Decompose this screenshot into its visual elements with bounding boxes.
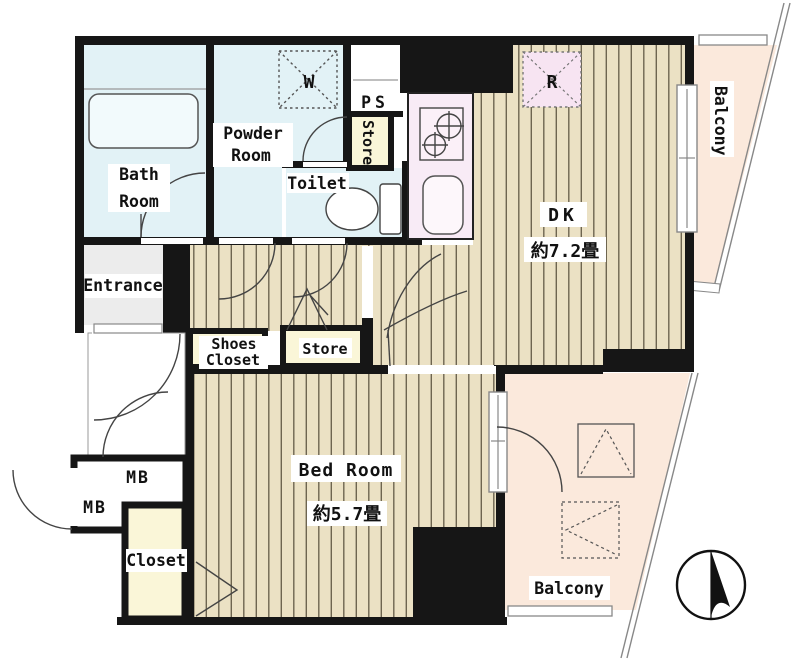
store-hall-label: Store [302,340,347,358]
fridge-symbol-label: R [547,72,558,93]
sliding-window-dk [677,85,697,232]
sliding-window-bedroom [489,392,507,492]
floorplan-page: Bath Room Powder Room Toilet PS Store W … [0,0,800,659]
mb-lower-label: MB [83,498,107,517]
dk-label: DK [548,205,578,226]
entrance-label: Entrance [83,276,163,295]
balcony-bottom-label: Balcony [534,579,604,598]
toilet-label: Toilet [287,174,347,193]
entrance-door-leaf [94,324,162,333]
powder-room-label-line2: Room [231,146,271,165]
dk-size-label: 約7.2畳 [531,240,600,262]
balcony-right-label: Balcony [711,86,730,156]
mb-door-opening [69,468,79,526]
store-upper-label: Store [359,120,377,165]
balcony-railing [699,35,767,45]
washer-symbol-label: W [304,72,315,93]
floor-plan: Bath Room Powder Room Toilet PS Store W … [0,0,800,659]
bedroom-label: Bed Room [299,460,394,481]
north-compass-icon [677,551,745,619]
bathtub-icon [89,94,198,148]
powder-room-label-line1: Powder [223,124,283,143]
porch-corridor [88,333,185,457]
bath-room-label-line1: Bath [119,165,159,184]
stove-icon [420,108,464,160]
ps-label: PS [361,93,389,112]
sink-icon [423,176,463,234]
bedroom-size-label: 約5.7畳 [313,503,382,525]
shoes-closet-label-line2: Closet [206,351,260,369]
mb-upper-label: MB [126,468,150,487]
bath-room-label-line2: Room [119,192,159,211]
balcony-railing [508,606,612,616]
closet-label: Closet [126,551,186,570]
